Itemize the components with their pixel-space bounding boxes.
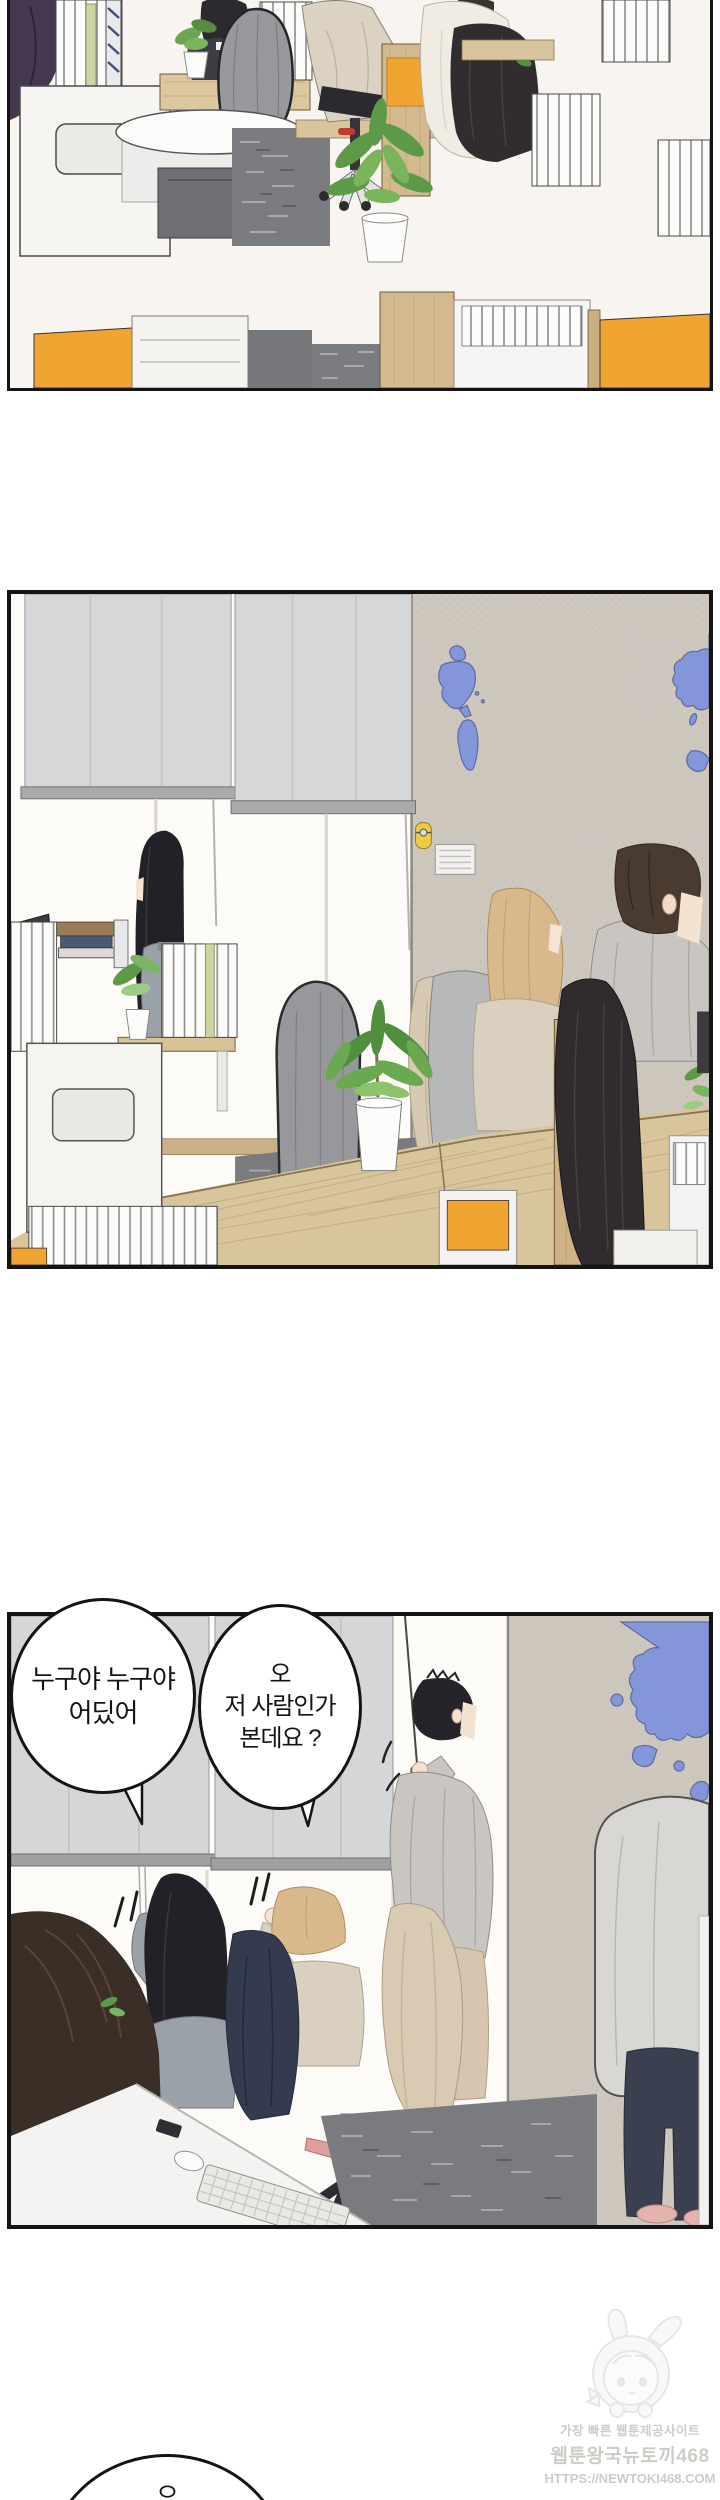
rabbit-mascot-icon — [555, 2306, 705, 2418]
divider-panel — [27, 1043, 162, 1232]
carpet — [311, 2086, 709, 2225]
desk-leg-right — [699, 1916, 709, 2225]
bubble-2-text: 오 저 사람인가 본데요 ? — [201, 1659, 359, 1754]
panel-1-artwork — [10, 0, 710, 388]
books-bottom-left — [29, 1206, 217, 1265]
comic-panel-1 — [7, 0, 713, 391]
speech-bubble-3-partial: 으 — [46, 2454, 288, 2500]
comic-panel-2 — [7, 590, 713, 1269]
bubble-3-text: 으 — [49, 2481, 285, 2500]
webtoon-page: 누구야 누구야 어딨어 오 저 사람인가 본데요 ? 으 — [0, 0, 720, 2500]
speech-bubble-1: 누구야 누구야 어딨어 — [10, 1598, 196, 1794]
watermark-tagline: 가장 빠른 웹툰제공사이트 — [538, 2420, 720, 2439]
bookshelf-right-2 — [602, 0, 670, 62]
books-row-desk — [162, 944, 237, 1037]
watermark-url: HTTPS://NEWTOKI468.COM — [538, 2471, 720, 2486]
site-watermark: 가장 빠른 웹툰제공사이트 웹툰왕국뉴토끼468 HTTPS://NEWTOKI… — [538, 2306, 720, 2486]
navy-jacket-on-chair — [226, 1930, 299, 2120]
carpet — [232, 128, 330, 246]
binders-left — [11, 922, 57, 1051]
figurine-yellow — [416, 823, 432, 849]
bubble-1-text: 누구야 누구야 어딨어 — [13, 1662, 193, 1731]
panel-2-artwork — [11, 594, 709, 1265]
wood-shelf-bar — [462, 40, 554, 60]
bookshelf-right-3 — [658, 140, 710, 236]
watermark-sitename: 웹툰왕국뉴토끼468 — [538, 2441, 720, 2468]
bookshelf-right-1 — [532, 94, 600, 186]
shelf-box — [435, 845, 475, 875]
speech-bubble-2: 오 저 사람인가 본데요 ? — [198, 1604, 362, 1810]
